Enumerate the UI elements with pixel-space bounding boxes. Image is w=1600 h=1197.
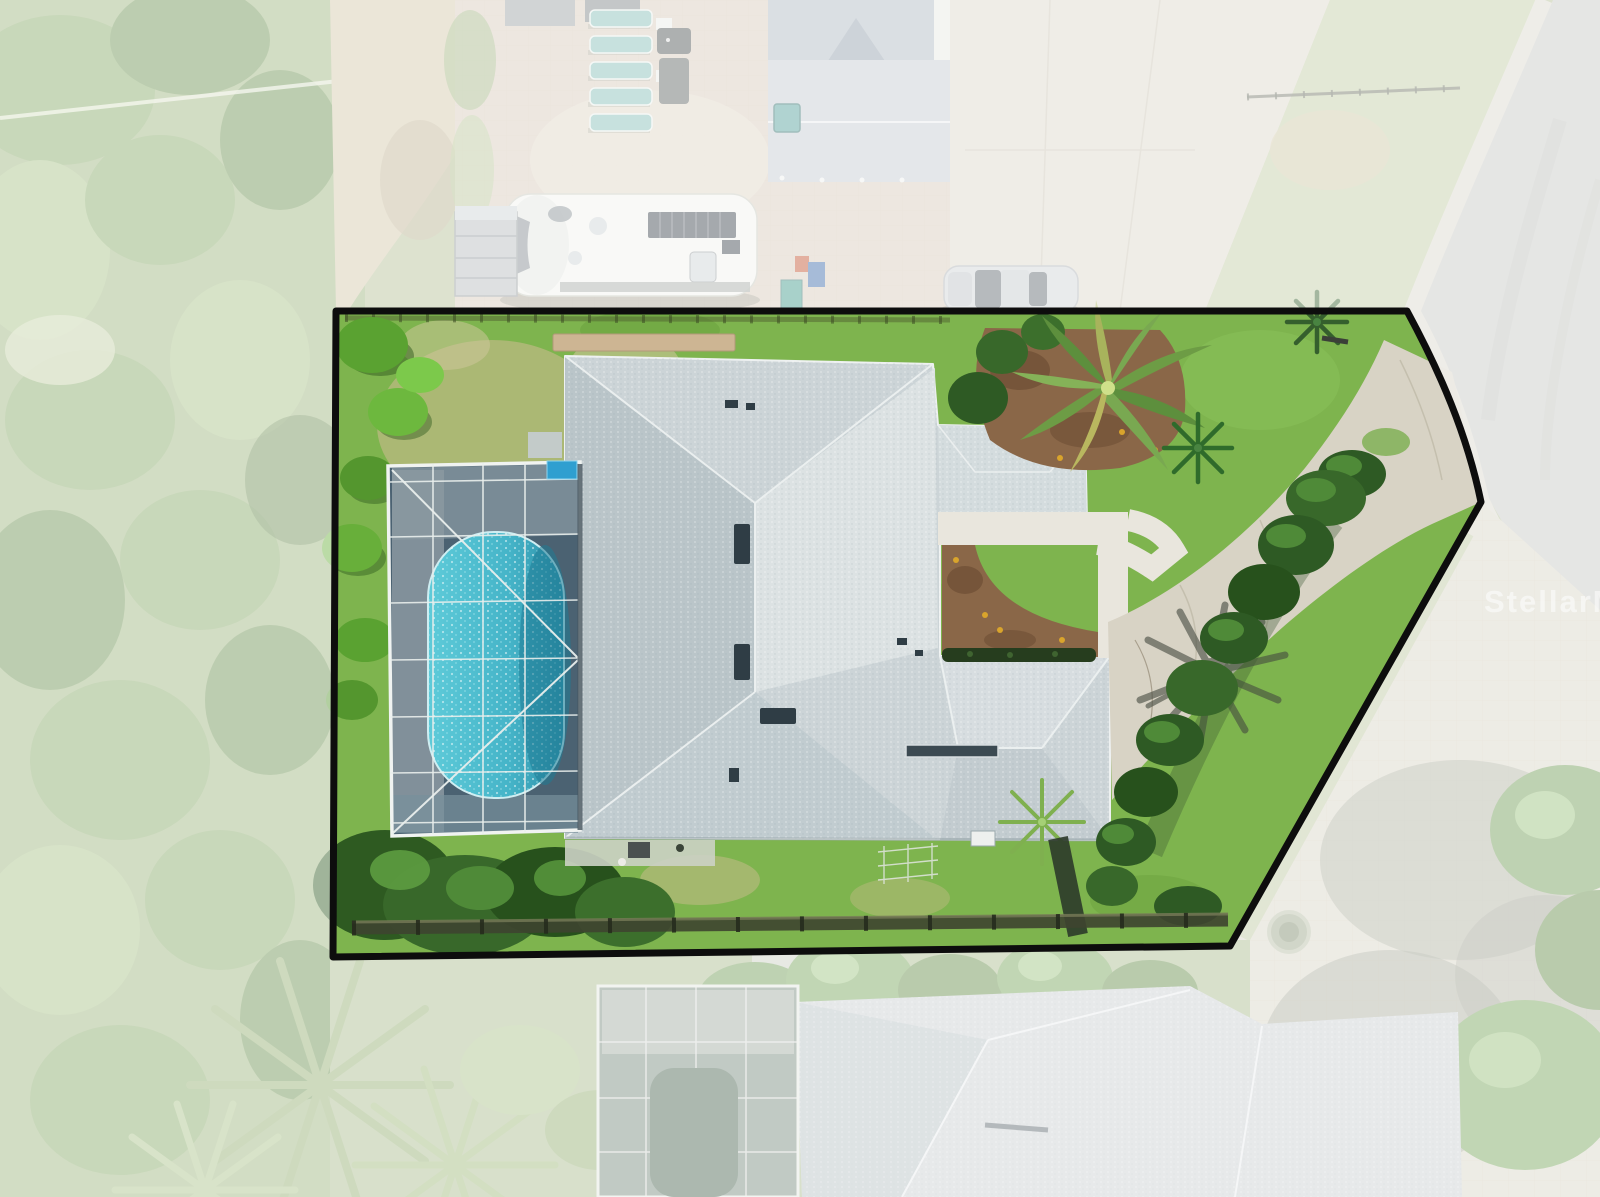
- courtyard-hedge: [942, 648, 1096, 662]
- ac-condenser: [971, 831, 995, 846]
- skylight: [734, 644, 750, 680]
- blue-spa-cover: [547, 461, 577, 479]
- equipment-pad: [528, 432, 562, 458]
- bush: [948, 372, 1008, 424]
- small-palm-backyard: [1000, 780, 1084, 864]
- ridge-vent: [906, 745, 998, 757]
- chimney-vent: [760, 708, 796, 724]
- rear-grill: [628, 842, 650, 858]
- stellar-mls-watermark: StellarMLS: [1484, 584, 1600, 619]
- skylight: [734, 524, 750, 564]
- rear-paver-path: [553, 334, 735, 351]
- aerial-photo-canvas: StellarMLS: [0, 0, 1600, 1197]
- aerial-photo: StellarMLS: [0, 0, 1600, 1197]
- pool-enclosure: [388, 462, 580, 836]
